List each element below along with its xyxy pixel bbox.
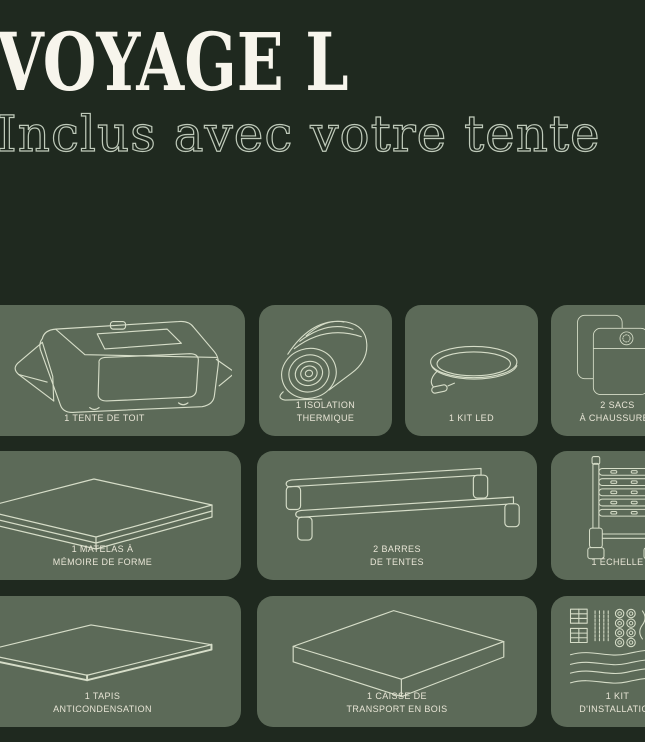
card-label: 1 KIT D'INSTALLATION <box>551 690 645 716</box>
card-wooden-transport-box: 1 CAISSE DE TRANSPORT EN BOIS <box>257 596 537 727</box>
card-memory-foam-mattress: 1 MATELAS À MÉMOIRE DE FORME <box>0 451 241 580</box>
label-line: 2 BARRES <box>257 543 537 556</box>
label-line: 1 KIT LED <box>405 412 538 425</box>
label-line: TRANSPORT EN BOIS <box>257 703 537 716</box>
label-line: À CHAUSSURES <box>551 412 645 425</box>
thermal-insulation-illustration <box>272 311 378 412</box>
page-subtitle: Inclus avec votre tente <box>0 108 601 161</box>
page-title: VOYAGE L <box>0 20 349 104</box>
card-roof-tent: 1 TENTE DE TOIT <box>0 305 245 436</box>
card-shoe-bags: 2 SACS À CHAUSSURES <box>551 305 645 436</box>
installation-kit-illustration <box>567 602 645 697</box>
label-line: 1 ISOLATION <box>259 399 392 412</box>
card-installation-kit: 1 KIT D'INSTALLATION <box>551 596 645 727</box>
card-ladder: 1 ÉCHELLE <box>551 451 645 580</box>
card-label: 1 TAPIS ANTICONDENSATION <box>0 690 241 716</box>
shoe-bags-illustration <box>573 311 645 401</box>
card-anticondensation-mat: 1 TAPIS ANTICONDENSATION <box>0 596 241 727</box>
label-line: THERMIQUE <box>259 412 392 425</box>
card-tent-bars: 2 BARRES DE TENTES <box>257 451 537 580</box>
card-label: 1 ÉCHELLE <box>551 556 645 569</box>
card-label: 1 TENTE DE TOIT <box>0 412 245 425</box>
card-label: 2 BARRES DE TENTES <box>257 543 537 569</box>
included-items-panel: VOYAGE L Inclus avec votre tente 1 TENTE… <box>0 0 645 742</box>
ladder-illustration <box>575 454 645 563</box>
card-label: 2 SACS À CHAUSSURES <box>551 399 645 425</box>
label-line: 1 CAISSE DE <box>257 690 537 703</box>
label-line: 1 TAPIS <box>0 690 241 703</box>
label-line: DE TENTES <box>257 556 537 569</box>
card-label: 1 CAISSE DE TRANSPORT EN BOIS <box>257 690 537 716</box>
card-thermal-insulation: 1 ISOLATION THERMIQUE <box>259 305 392 436</box>
anticondensation-mat-illustration <box>0 618 218 695</box>
card-label: 1 KIT LED <box>405 412 538 425</box>
label-line: 1 TENTE DE TOIT <box>0 412 245 425</box>
card-led-kit: 1 KIT LED <box>405 305 538 436</box>
card-label: 1 ISOLATION THERMIQUE <box>259 399 392 425</box>
label-line: 2 SACS <box>551 399 645 412</box>
label-line: D'INSTALLATION <box>551 703 645 716</box>
label-line: 1 ÉCHELLE <box>551 556 645 569</box>
led-kit-illustration <box>411 329 531 407</box>
label-line: ANTICONDENSATION <box>0 703 241 716</box>
card-label: 1 MATELAS À MÉMOIRE DE FORME <box>0 543 241 569</box>
roof-tent-illustration <box>4 314 232 418</box>
label-line: MÉMOIRE DE FORME <box>0 556 241 569</box>
label-line: 1 KIT <box>551 690 645 703</box>
label-line: 1 MATELAS À <box>0 543 241 556</box>
